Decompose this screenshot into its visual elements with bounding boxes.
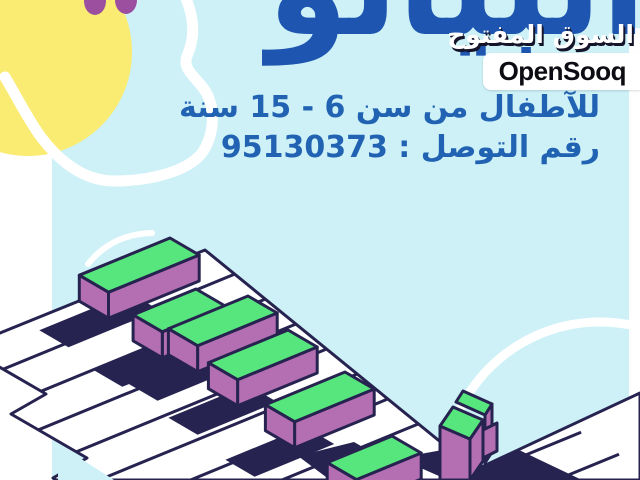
watermark-arabic-text: السوق المفتوح: [447, 20, 634, 49]
watermark-latin-text: OpenSooq: [499, 56, 626, 87]
yellow-circle-shape: [0, 0, 132, 156]
subtitle-contact-number: رقم التوصل : 95130373: [179, 128, 600, 168]
opensooq-watermark: OpenSooq: [483, 53, 640, 90]
ad-poster: البيانو للآطفال من سن 6 - 15 سنة رقم الت…: [0, 0, 640, 480]
poster-subtitle: للآطفال من سن 6 - 15 سنة رقم التوصل : 95…: [179, 88, 600, 168]
subtitle-age-range: للآطفال من سن 6 - 15 سنة: [179, 88, 600, 128]
